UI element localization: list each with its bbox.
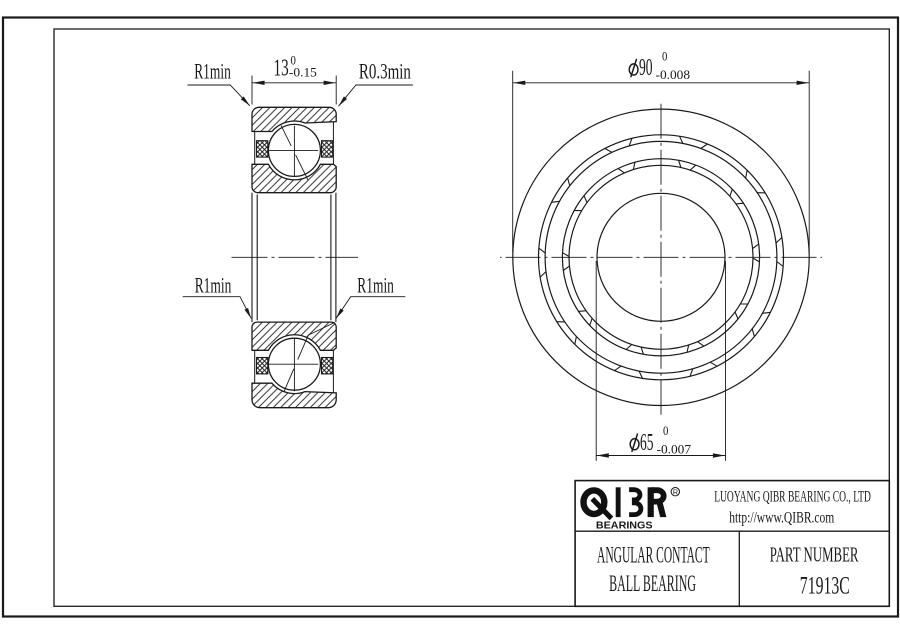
svg-text:90: 90 [639,55,653,81]
svg-text:-0.15: -0.15 [289,66,317,80]
svg-text:-0.007: -0.007 [657,443,692,457]
svg-text:R1min: R1min [357,273,394,298]
svg-text:R1min: R1min [194,58,231,83]
svg-text:-0.008: -0.008 [656,68,691,82]
svg-text:PART NUMBER: PART NUMBER [770,542,859,566]
svg-text:LUOYANG QIBR BEARING CO., LTD: LUOYANG QIBR BEARING CO., LTD [714,488,871,505]
svg-text:R0.3min: R0.3min [359,58,411,83]
svg-text:13: 13 [274,56,289,82]
svg-text:R1min: R1min [195,273,232,298]
svg-text:http://www.QIBR.com: http://www.QIBR.com [729,510,835,527]
svg-text:0: 0 [662,50,667,64]
svg-text:0: 0 [663,424,668,438]
svg-text:71913C: 71913C [800,570,850,599]
svg-text:65: 65 [640,430,654,456]
svg-text:BALL BEARING: BALL BEARING [609,571,696,596]
svg-text:ANGULAR CONTACT: ANGULAR CONTACT [597,543,710,568]
svg-text:R: R [673,487,678,496]
svg-text:BEARINGS: BEARINGS [596,520,653,532]
